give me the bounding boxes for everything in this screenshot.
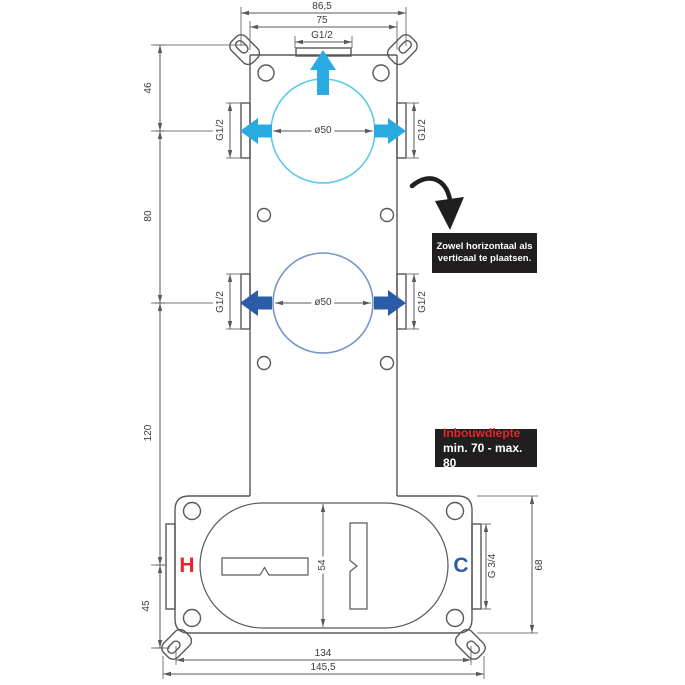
dim-top-port: G1/2 bbox=[311, 31, 333, 41]
dim-left-80: 80 bbox=[144, 210, 154, 221]
dim-lower-right-thread: G1/2 bbox=[418, 291, 428, 313]
dim-left-46: 46 bbox=[144, 82, 154, 93]
arrow-left-lower-icon bbox=[240, 290, 272, 316]
dim-lower-diameter: ø50 bbox=[311, 298, 334, 308]
hot-water-label: H bbox=[179, 554, 194, 578]
dimension-arrowheads bbox=[158, 11, 534, 676]
depth-spec-label: Inbouwdiepte bbox=[443, 426, 537, 441]
extension-lines bbox=[151, 7, 538, 679]
drawing-canvas bbox=[0, 0, 685, 685]
technical-drawing: 86,5 75 G1/2 46 80 120 45 ø50 ø50 G1/2 G… bbox=[0, 0, 685, 685]
depth-spec-range: min. 70 - max. 80 bbox=[443, 441, 537, 471]
dimension-lines bbox=[155, 13, 532, 674]
dim-upper-diameter: ø50 bbox=[311, 126, 334, 136]
dim-lower-left-thread: G1/2 bbox=[216, 291, 226, 313]
placement-note-box: Zowel horizontaal als verticaal te plaat… bbox=[432, 233, 537, 273]
arrow-right-lower-icon bbox=[374, 290, 406, 316]
dim-inner-height: 54 bbox=[318, 556, 328, 573]
depth-spec-box: Inbouwdiepte min. 70 - max. 80 bbox=[435, 429, 537, 467]
dim-left-45: 45 bbox=[142, 600, 152, 611]
arrow-up-icon bbox=[310, 50, 336, 95]
arrow-left-upper-icon bbox=[240, 118, 272, 144]
dim-top-body: 75 bbox=[316, 16, 327, 26]
dim-upper-left-thread: G1/2 bbox=[216, 119, 226, 141]
dim-box-height: 68 bbox=[535, 559, 545, 570]
arrow-right-upper-icon bbox=[374, 118, 406, 144]
cold-water-label: C bbox=[453, 554, 468, 578]
placement-note-line2: verticaal te plaatsen. bbox=[438, 253, 531, 265]
dim-port-thread: G 3/4 bbox=[488, 554, 498, 578]
dim-top-outer: 86,5 bbox=[312, 2, 331, 12]
dim-upper-right-thread: G1/2 bbox=[418, 119, 428, 141]
placement-note-line1: Zowel horizontaal als bbox=[436, 241, 532, 253]
curved-callout-arrow-icon bbox=[412, 178, 464, 230]
dim-bottom-inner: 134 bbox=[315, 649, 332, 659]
dim-bottom-outer: 145,5 bbox=[310, 663, 335, 673]
dim-left-120: 120 bbox=[144, 425, 154, 442]
